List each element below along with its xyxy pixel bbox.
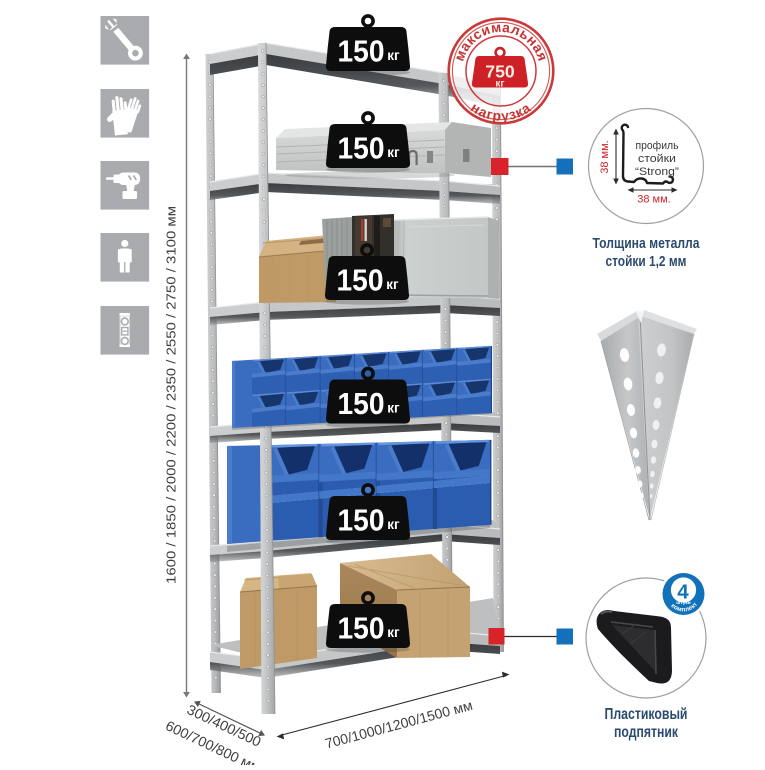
svg-text:Пластиковый: Пластиковый [605, 706, 688, 723]
svg-text:стойки 1,2 мм: стойки 1,2 мм [606, 254, 687, 270]
svg-text:1600 / 1850 / 2000 / 2200 / 23: 1600 / 1850 / 2000 / 2200 / 2350 / 2550 … [165, 206, 179, 584]
svg-text:“Strong”: “Strong” [635, 166, 679, 178]
svg-text:стойки: стойки [638, 153, 676, 165]
svg-text:38 мм.: 38 мм. [599, 140, 611, 173]
svg-text:профиль: профиль [636, 140, 679, 152]
svg-text:4: 4 [677, 581, 689, 604]
svg-text:подпятник: подпятник [614, 724, 678, 741]
svg-text:кг: кг [495, 79, 504, 90]
svg-text:38 мм.: 38 мм. [637, 194, 670, 206]
svg-text:Толщина металла: Толщина металла [593, 236, 701, 252]
